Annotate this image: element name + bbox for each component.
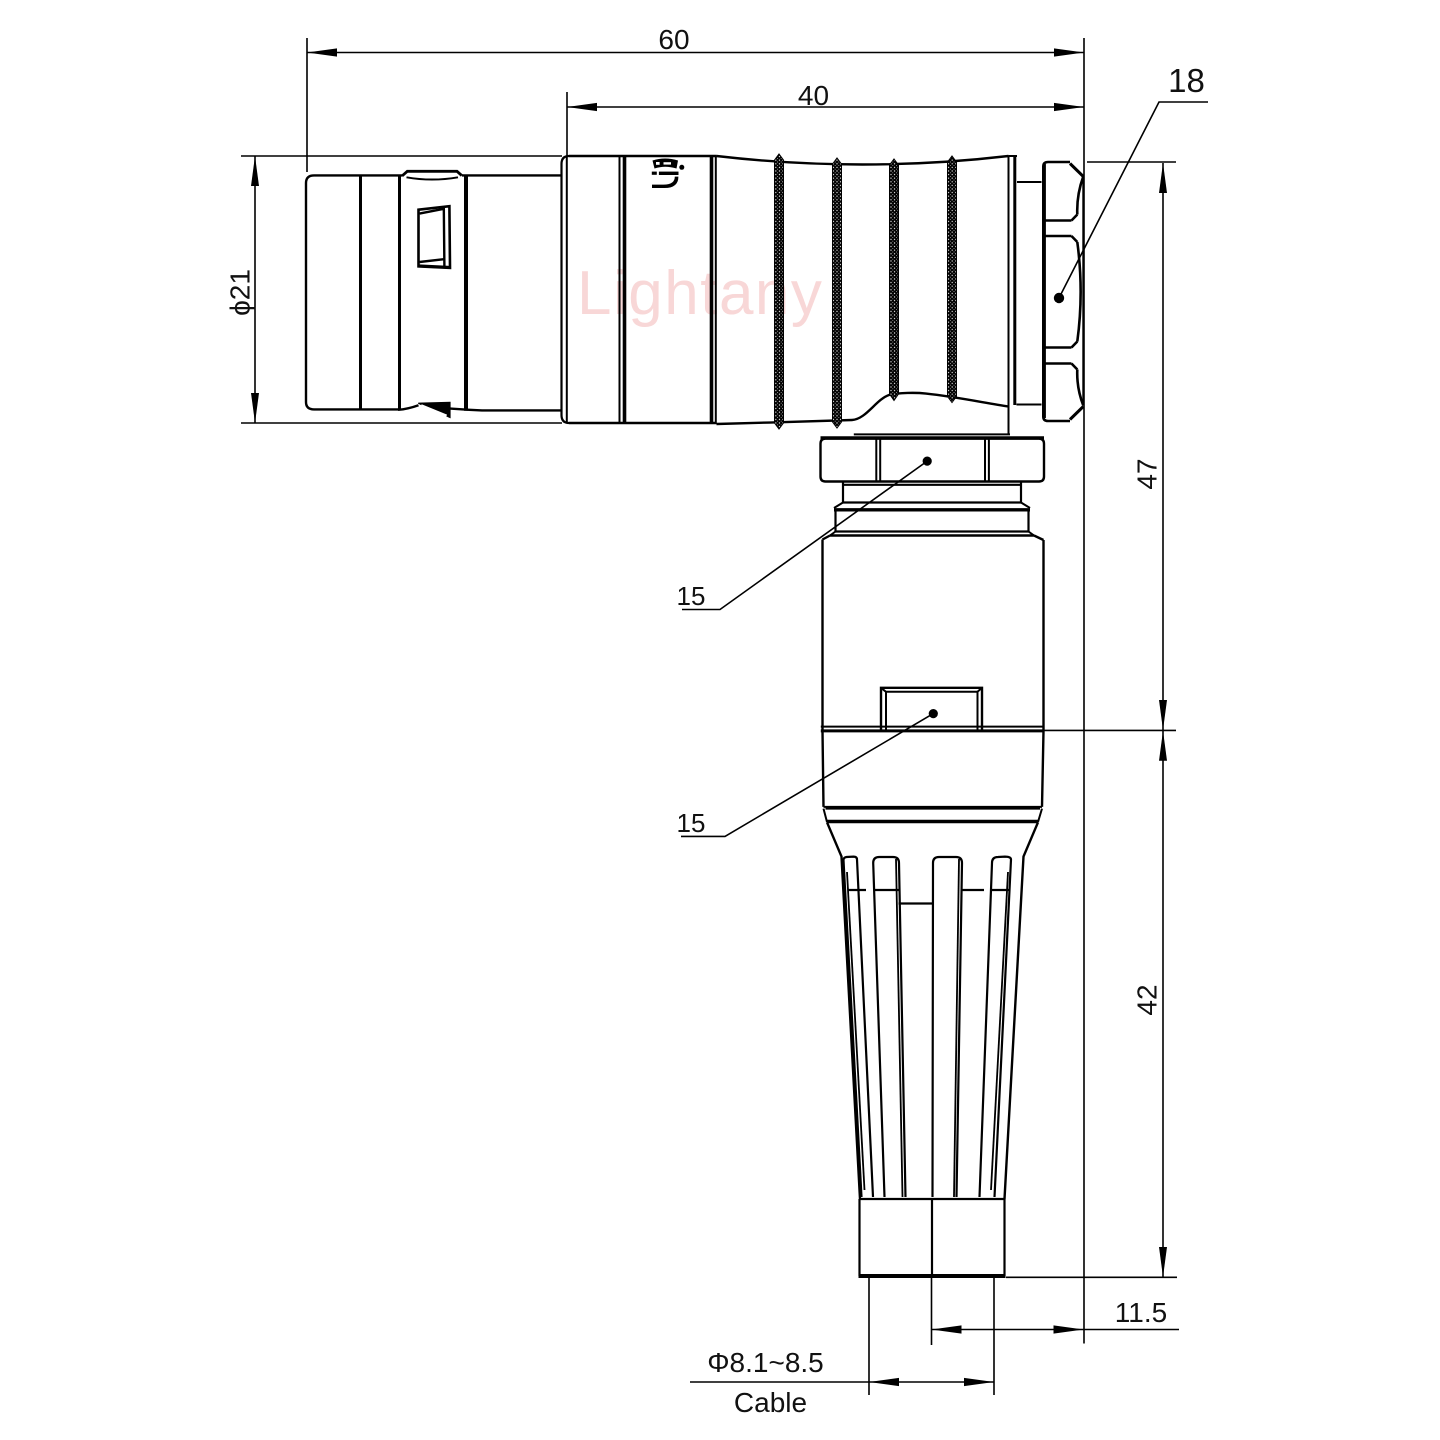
svg-text:Cable: Cable <box>734 1387 807 1418</box>
svg-text:11.5: 11.5 <box>1115 1297 1167 1328</box>
svg-text:ϕ21: ϕ21 <box>225 269 256 316</box>
svg-text:Φ8.1~8.5: Φ8.1~8.5 <box>707 1347 824 1378</box>
svg-text:18: 18 <box>1168 62 1205 99</box>
svg-text:Lightany: Lightany <box>577 259 823 328</box>
svg-text:47: 47 <box>1132 458 1163 489</box>
svg-text:15: 15 <box>677 581 706 611</box>
svg-text:60: 60 <box>658 24 689 55</box>
svg-text:40: 40 <box>798 80 829 111</box>
svg-text:15: 15 <box>677 808 706 838</box>
svg-text:42: 42 <box>1132 984 1163 1015</box>
